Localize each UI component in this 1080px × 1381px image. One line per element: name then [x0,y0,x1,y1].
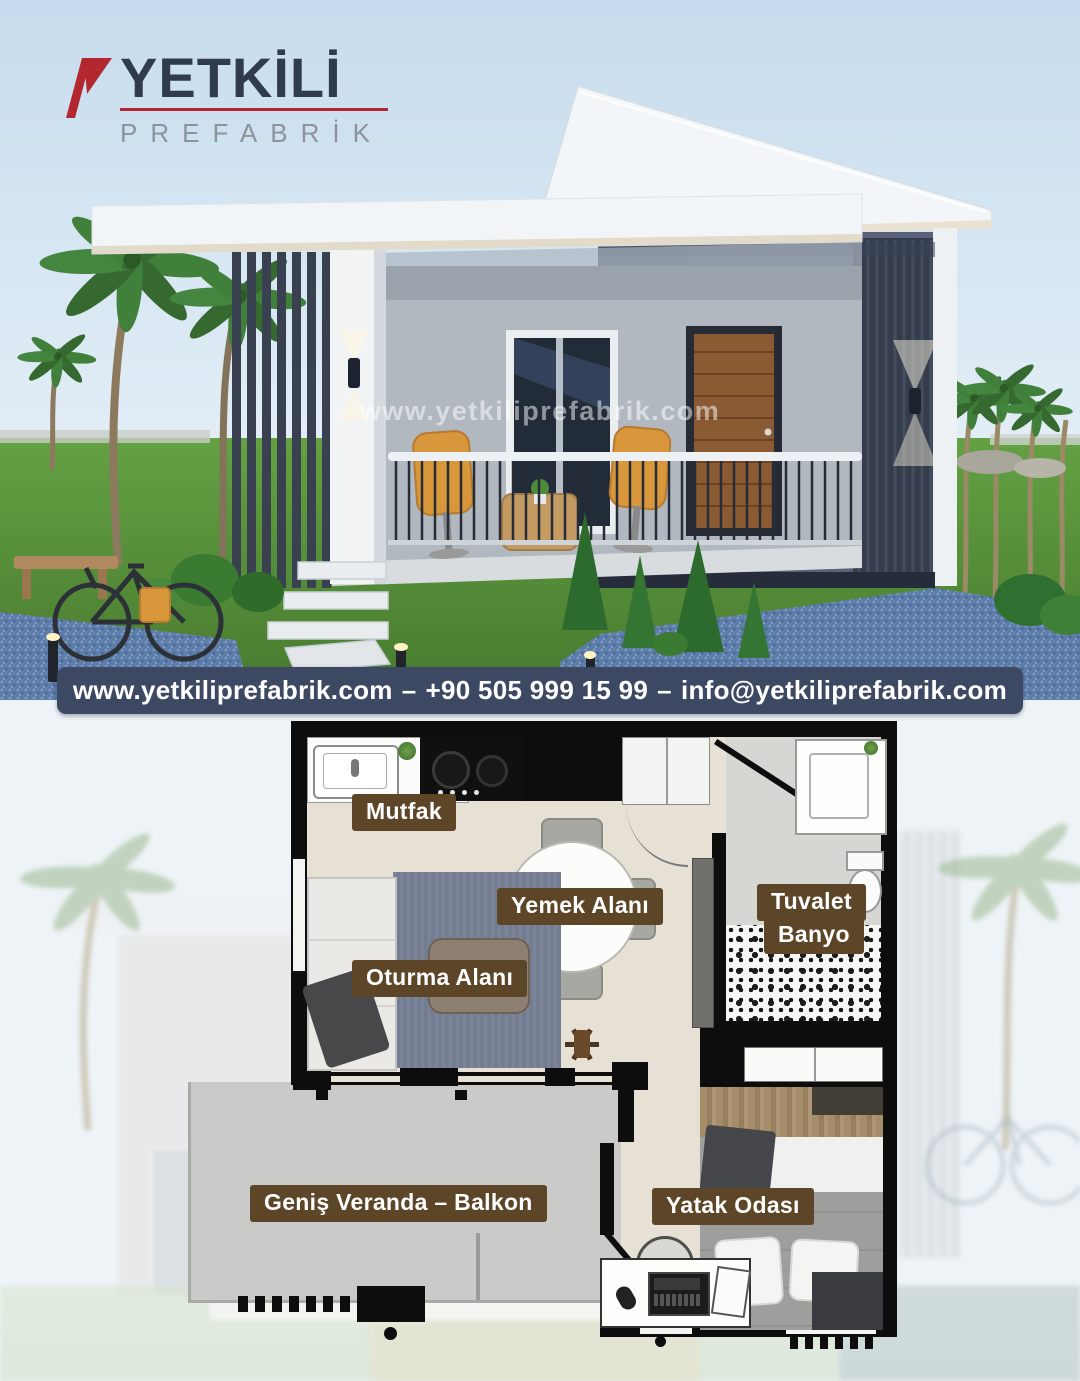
glass-wall [331,1082,623,1085]
glass-wall [331,1072,623,1076]
laptop-icon [648,1272,710,1316]
wall-bedroom-left [600,1143,614,1235]
rocks [1014,458,1066,478]
wardrobe [744,1047,883,1082]
plant-icon [398,742,416,760]
room-label-bath: Banyo [764,917,864,954]
toilet-tank [846,851,884,871]
sink-icon [313,745,399,799]
wall-bathroom-left [712,833,726,1033]
room-label-dining: Yemek Alanı [497,888,663,925]
plant-icon [864,741,878,755]
mouse-icon [613,1284,639,1313]
brand-logo: YETKİLİ PREFABRİK [62,52,388,149]
stove-icon [420,737,522,801]
bed-sheet [763,1137,883,1192]
door-stop [655,1336,666,1347]
wall-hook [455,1090,467,1100]
room-label-bedroom: Yatak Odası [652,1188,814,1225]
wall-bathroom-bottom [700,1021,883,1035]
watermark: www.yetkiliprefabrik.com [360,396,721,427]
rocks [956,450,1024,474]
wall-stub [618,1090,634,1142]
notebook-icon [711,1266,751,1318]
veranda-dot [384,1327,397,1340]
logo-subtitle: PREFABRİK [120,118,388,149]
banner-separator: – [402,675,417,706]
wall-top [291,721,897,737]
window-marker [293,856,305,974]
wall-post [612,1062,648,1090]
room-label-veranda: Geniş Veranda – Balkon [250,1185,547,1222]
horizon-road [0,430,210,443]
contact-banner: www.yetkiliprefabrik.com – +90 505 999 1… [57,667,1023,714]
corner-trim [933,228,957,586]
faded-bicycle [920,1080,1080,1220]
tall-cabinet [692,858,714,1028]
wall-hook [316,1090,328,1100]
faucet-icon [351,759,359,777]
banner-email: info@yetkiliprefabrik.com [681,675,1007,706]
room-label-toilet: Tuvalet [757,884,866,921]
kitchen-cabinet-dark [522,737,622,801]
blanket [812,1272,883,1330]
room-label-living: Oturma Alanı [352,960,527,997]
logo-title: YETKİLİ [120,52,388,104]
door-handle [765,429,772,436]
banner-separator: – [657,675,672,706]
desk [600,1258,751,1328]
room-label-kitchen: Mutfak [352,794,456,831]
banner-phone: +90 505 999 15 99 [425,675,648,706]
banner-website: www.yetkiliprefabrik.com [73,675,393,706]
headboard-shelf [812,1087,883,1115]
flyer: YETKİLİ PREFABRİK www.yetkiliprefabrik.c… [0,0,1080,1381]
logo-roof-icon [62,52,114,124]
plant-icon [560,1022,604,1066]
fridge-icon [622,737,710,805]
veranda-step-block [357,1286,425,1322]
veranda-divider [476,1233,480,1300]
